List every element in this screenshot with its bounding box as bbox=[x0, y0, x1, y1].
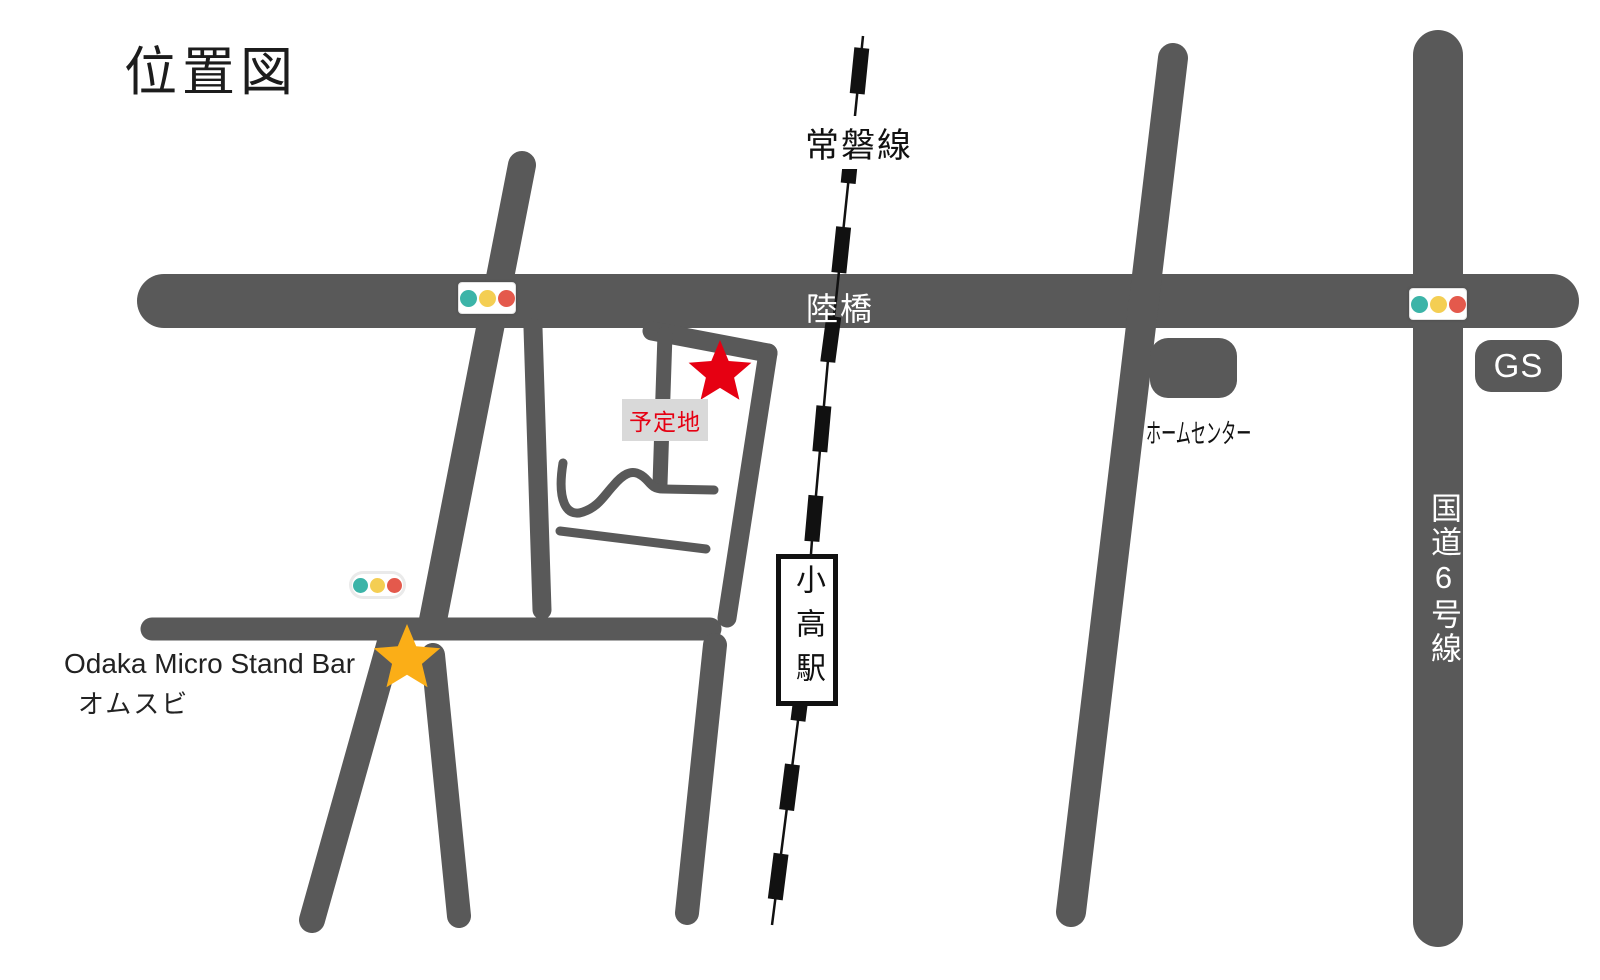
traffic-light-icon bbox=[458, 282, 516, 314]
signal-yellow-dot bbox=[479, 290, 496, 307]
block-left-edge bbox=[533, 328, 542, 610]
railway-label: 常磐線 bbox=[800, 116, 918, 169]
page-title: 位置図 bbox=[124, 30, 298, 106]
railway-line bbox=[772, 36, 863, 925]
signal-yellow-dot bbox=[1430, 296, 1447, 313]
station-label: 小高駅 bbox=[785, 564, 829, 696]
road-middle-diagonal bbox=[1071, 58, 1173, 912]
shop-name-japanese: オムスビ bbox=[78, 684, 189, 721]
signal-yellow-dot bbox=[370, 578, 385, 593]
signal-teal-dot bbox=[353, 578, 368, 593]
shop-name-english: Odaka Micro Stand Bar bbox=[64, 648, 355, 680]
road-right-leg bbox=[433, 655, 459, 916]
location-map: 位置図 常磐線 陸橋 予定地 小高駅 ホームセンター GS 国道6号線 Odak… bbox=[0, 0, 1600, 980]
signal-red-dot bbox=[498, 290, 515, 307]
block-inner-curve bbox=[561, 463, 714, 513]
station-box: 小高駅 bbox=[776, 554, 838, 706]
home-center-building bbox=[1150, 338, 1237, 398]
traffic-light-icon bbox=[352, 574, 403, 596]
gas-station-label: GS bbox=[1494, 347, 1544, 385]
block-inner-lower-line bbox=[560, 531, 706, 549]
signal-red-dot bbox=[387, 578, 402, 593]
route6-label: 国道6号線 bbox=[1421, 492, 1466, 666]
road-left-leg bbox=[312, 642, 390, 920]
roads-group bbox=[152, 55, 1552, 922]
road-upper-left-diagonal bbox=[433, 165, 522, 620]
overpass-label: 陸橋 bbox=[806, 284, 874, 330]
planned-site-label: 予定地 bbox=[622, 399, 708, 441]
signal-teal-dot bbox=[1411, 296, 1428, 313]
road-station-leg bbox=[687, 645, 715, 913]
gas-station-badge: GS bbox=[1475, 340, 1562, 392]
home-center-label: ホームセンター bbox=[1146, 412, 1251, 451]
signal-red-dot bbox=[1449, 296, 1466, 313]
signal-teal-dot bbox=[460, 290, 477, 307]
traffic-light-icon bbox=[1409, 288, 1467, 320]
